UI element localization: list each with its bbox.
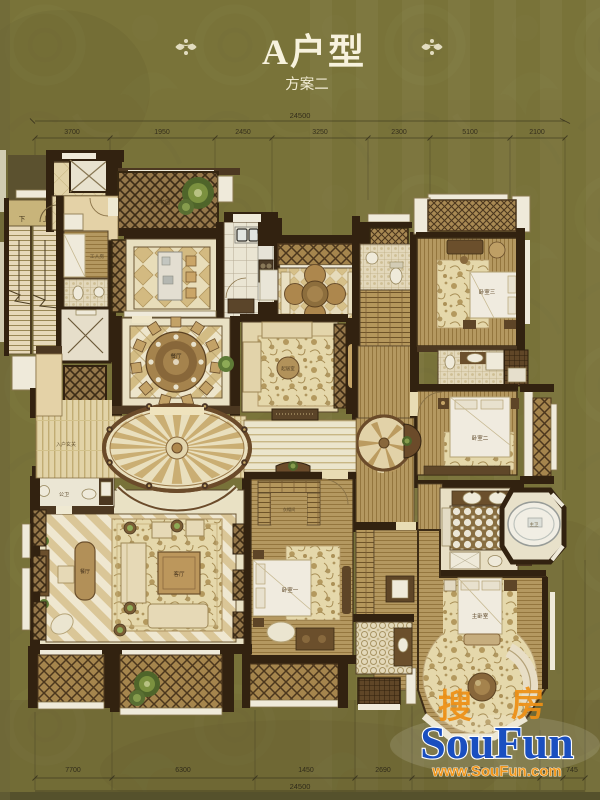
svg-text:1450: 1450 <box>298 767 314 774</box>
svg-text:24500: 24500 <box>290 782 311 791</box>
svg-text:6300: 6300 <box>175 767 191 774</box>
svg-text:SouFun: SouFun <box>420 717 573 768</box>
svg-text:www.SouFun.com: www.SouFun.com <box>431 763 561 780</box>
svg-text:A户型: A户型 <box>262 32 366 72</box>
svg-text:2690: 2690 <box>375 767 391 774</box>
svg-text:745: 745 <box>566 767 578 774</box>
svg-text:方案二: 方案二 <box>285 75 329 93</box>
svg-text:7700: 7700 <box>65 767 81 774</box>
